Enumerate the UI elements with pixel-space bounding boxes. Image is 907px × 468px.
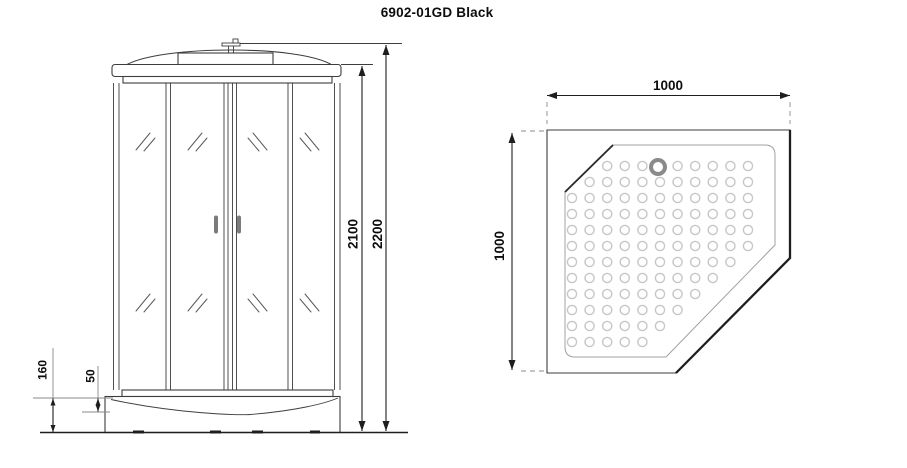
dim-label-depth: 1000 — [492, 231, 507, 261]
glass-frame-posts — [114, 83, 341, 390]
technical-drawing-page: 6902-01GD Black — [0, 0, 907, 468]
tray-dimple-grid — [567, 161, 752, 346]
top-plan-view: 1000 1000 — [492, 78, 790, 373]
glass-reflection-marks — [136, 133, 319, 312]
front-elevation-view: 2100 2200 160 50 — [33, 39, 408, 434]
tray-corner-chamfer — [565, 145, 613, 192]
ext-lines-depth — [521, 131, 545, 371]
roof-box — [178, 53, 273, 65]
canopy-lip — [123, 77, 332, 84]
door-handle-right — [237, 216, 241, 234]
dim-label-width: 1000 — [653, 78, 683, 93]
door-handle-left — [214, 216, 218, 234]
canopy-band — [112, 65, 341, 77]
dim-label-total-height: 2200 — [370, 219, 385, 249]
tray-inner-rim — [565, 145, 775, 357]
ext-lines-width — [547, 102, 790, 124]
tray-entry-edge — [676, 130, 790, 373]
dim-label-tray-height: 160 — [36, 360, 50, 380]
tray-outer-outline — [547, 130, 790, 373]
dim-label-cabin-height: 2100 — [346, 219, 361, 249]
drain-hole — [651, 160, 665, 174]
bottom-rail — [122, 390, 333, 397]
drawing-canvas: 2100 2200 160 50 1000 1000 — [0, 0, 907, 468]
dim-label-tray-step: 50 — [84, 369, 98, 383]
